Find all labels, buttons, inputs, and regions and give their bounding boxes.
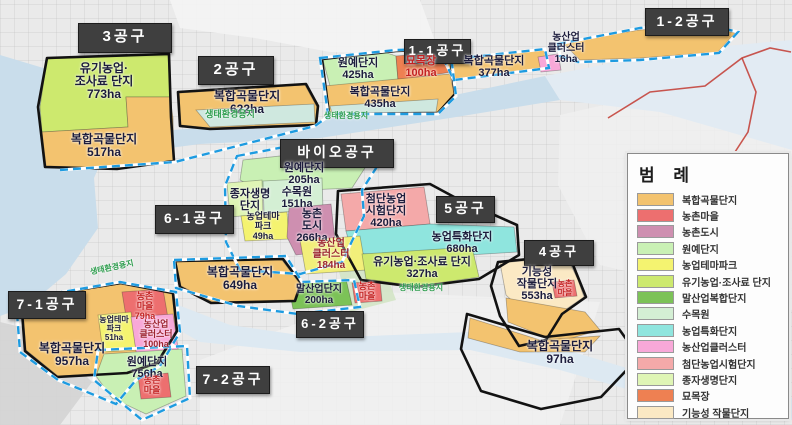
legend-swatch: [637, 340, 674, 353]
zone-label: 복합곡물단지435ha: [350, 86, 411, 110]
legend-label: 묘목장: [682, 388, 710, 403]
zone-label: 농업테마파크51ha: [99, 316, 128, 342]
legend-label: 말산업복합단지: [682, 290, 746, 305]
legend-label: 원예단지: [682, 241, 719, 256]
legend-item: 원예단지: [637, 240, 779, 256]
zone-label: 농촌마을79ha: [135, 292, 156, 322]
zone-label: 복합곡물단지377ha: [464, 55, 525, 79]
legend-item: 묘목장: [637, 388, 779, 404]
legend-item: 수목원: [637, 306, 779, 322]
legend-item: 말산업복합단지: [637, 289, 779, 305]
zone-label: 기능성작물단지553ha: [517, 266, 557, 302]
zone-label: 생태환경용지: [324, 112, 368, 121]
legend-label: 농촌마을: [682, 208, 719, 223]
legend-swatch: [637, 324, 674, 337]
district-label-2공구: 2공구: [198, 56, 274, 85]
district-label-1-2공구: 1-2공구: [645, 8, 729, 36]
legend-swatch: [637, 389, 674, 402]
district-label-3공구: 3공구: [78, 23, 172, 53]
zone-label: 유기농업·조사료 단지773ha: [75, 62, 134, 102]
legend-item: 농촌도시: [637, 224, 779, 240]
legend-item: 첨단농업시험단지: [637, 355, 779, 371]
zone-label: 농산업클러스터100ha: [139, 320, 172, 350]
zone-label: 묘목장100ha: [405, 55, 436, 79]
zone-label: 말산업단지200ha: [296, 284, 342, 306]
legend-label: 수목원: [682, 306, 710, 321]
legend-swatch: [637, 242, 674, 255]
zone-label: 종자생명단지: [230, 188, 270, 212]
zone-label: 수목원151ha: [281, 186, 312, 210]
legend-swatch: [637, 291, 674, 304]
legend-label: 종자생명단지: [682, 372, 737, 387]
zone-label: 농업테마파크49ha: [246, 212, 279, 242]
zone-label: 원예단지425ha: [338, 57, 378, 81]
zone-label: 농촌마을: [144, 376, 161, 396]
legend-label: 농업테마파크: [682, 257, 737, 272]
legend-label: 농업특화단지: [682, 323, 737, 338]
district-label-7-2공구: 7-2공구: [196, 366, 270, 394]
legend-label: 첨단농업시험단지: [682, 356, 756, 371]
legend-item: 농촌마을: [637, 207, 779, 223]
legend-item: 종자생명단지: [637, 371, 779, 387]
legend-swatch: [637, 406, 674, 419]
legend-swatch: [637, 307, 674, 320]
legend-item: 복합곡물단지: [637, 191, 779, 207]
legend-swatch: [637, 225, 674, 238]
zone-label: 농촌마을: [558, 280, 573, 298]
zone-label: 생태환경용지: [399, 284, 443, 293]
legend-label: 기능성 작물단지: [682, 405, 749, 420]
zone-label: 복합곡물단지517ha: [71, 133, 137, 159]
zone-label: 농업특화단지680ha: [432, 231, 493, 255]
zone-label: 복합곡물단지649ha: [207, 266, 273, 292]
district-label-6-2공구: 6-2공구: [296, 311, 364, 338]
legend-item: 농업테마파크: [637, 257, 779, 273]
legend-label: 농산업클러스터: [682, 339, 746, 354]
legend-swatch: [637, 193, 674, 206]
legend-swatch: [637, 357, 674, 370]
legend-label: 유기농업·조사료 단지: [682, 274, 771, 289]
zone-label: 첨단농업시험단지420ha: [366, 193, 406, 229]
zone-label: 생태환경용지: [89, 260, 134, 278]
zone-label: 복합곡물단지957ha: [39, 342, 105, 368]
legend-title: 범 례: [639, 161, 779, 186]
land-use-plan-map: 3공구2공구1-1공구1-2공구바이오공구6-1공구5공구4공구7-1공구6-2…: [0, 0, 792, 425]
legend-panel: 범 례 복합곡물단지농촌마을농촌도시원예단지농업테마파크유기농업·조사료 단지말…: [627, 153, 789, 419]
zone-label: 원예단지205ha: [284, 162, 324, 186]
district-label-6-1공구: 6-1공구: [155, 205, 234, 234]
legend-items: 복합곡물단지농촌마을농촌도시원예단지농업테마파크유기농업·조사료 단지말산업복합…: [637, 191, 779, 420]
zone-label: 유기농업·조사료 단지327ha: [373, 256, 471, 280]
legend-swatch: [637, 209, 674, 222]
legend-swatch: [637, 258, 674, 271]
zone-label: 농산업클러스터184ha: [313, 238, 350, 271]
legend-label: 농촌도시: [682, 224, 719, 239]
zone-label: 농산업클러스터16ha: [548, 32, 585, 65]
legend-label: 복합곡물단지: [682, 192, 737, 207]
legend-item: 유기농업·조사료 단지: [637, 273, 779, 289]
legend-item: 농업특화단지: [637, 322, 779, 338]
district-label-7-1공구: 7-1공구: [8, 291, 86, 319]
legend-swatch: [637, 275, 674, 288]
legend-item: 기능성 작물단지: [637, 404, 779, 420]
zone-label: 생태환경용지: [205, 110, 255, 120]
legend-swatch: [637, 373, 674, 386]
district-label-5공구: 5공구: [436, 196, 495, 223]
zone-label: 농촌마을: [359, 282, 376, 302]
district-label-4공구: 4공구: [524, 240, 594, 266]
legend-item: 농산업클러스터: [637, 339, 779, 355]
zone-label: 복합곡물단지97ha: [527, 340, 593, 366]
